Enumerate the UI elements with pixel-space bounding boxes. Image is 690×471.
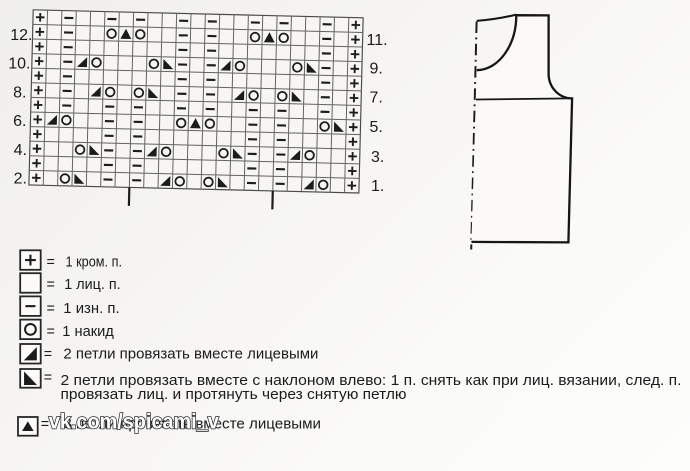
svg-text:=: =: [47, 277, 55, 293]
svg-text:6.: 6.: [13, 113, 26, 130]
svg-text:12.: 12.: [10, 27, 32, 44]
svg-text:2.: 2.: [14, 170, 27, 187]
svg-text:1 изн. п.: 1 изн. п.: [63, 301, 119, 317]
svg-text:=: =: [44, 370, 52, 386]
svg-text:=: =: [47, 301, 55, 317]
svg-text:10.: 10.: [8, 56, 30, 73]
svg-text:2 петли провязать вместе лицев: 2 петли провязать вместе лицевыми: [63, 347, 318, 363]
svg-text:5.: 5.: [370, 119, 383, 136]
svg-text:1 накид: 1 накид: [62, 324, 114, 340]
svg-text:провязать лиц. и протянуть чер: провязать лиц. и протянуть через снятую …: [61, 387, 407, 403]
svg-text:vk.com/spicami_v: vk.com/spicami_v: [49, 410, 219, 433]
svg-text:1 кром. п.: 1 кром. п.: [66, 254, 123, 270]
svg-text:4.: 4.: [14, 142, 27, 159]
svg-text:1 лиц. п.: 1 лиц. п.: [64, 277, 120, 293]
svg-text:7.: 7.: [370, 90, 383, 107]
svg-text:9.: 9.: [370, 61, 383, 78]
svg-text:3.: 3.: [371, 149, 384, 166]
svg-text:=: =: [44, 347, 52, 363]
svg-text:=: =: [47, 254, 55, 270]
svg-text:11.: 11.: [367, 32, 388, 49]
svg-text:1.: 1.: [371, 178, 384, 195]
svg-text:8.: 8.: [13, 84, 26, 101]
svg-text:=: =: [47, 324, 55, 340]
